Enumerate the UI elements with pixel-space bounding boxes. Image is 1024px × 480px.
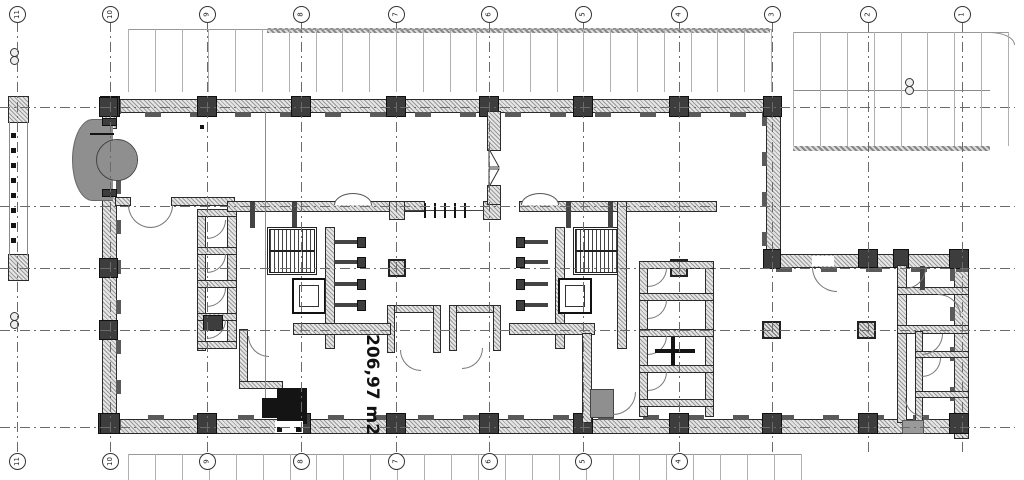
door-arc: [648, 372, 667, 391]
parking-stall-divider: [664, 29, 665, 92]
parking-stall-divider: [530, 29, 531, 92]
parking-stall-divider: [342, 29, 343, 92]
parking-stall-divider: [423, 29, 424, 92]
toilet-partition: [671, 337, 675, 365]
grid-bubble-bottom-8: 8: [293, 453, 310, 470]
column-dot: [200, 125, 204, 129]
fin-wall: [522, 240, 548, 244]
partition: [198, 281, 236, 287]
grid-bubble-label: 11: [14, 457, 21, 466]
fence-post: [11, 163, 16, 168]
parking-stall-divider: [290, 454, 291, 480]
grid-bubble-bottom-4: 4: [671, 453, 688, 470]
mullion-post: [390, 202, 404, 219]
door-arc: [812, 267, 837, 292]
grid-line-horizontal: [0, 330, 1015, 331]
fin-cap: [358, 238, 365, 247]
fence-post: [11, 238, 16, 243]
wall-right-main: [767, 100, 780, 267]
parking-stall-divider: [316, 29, 317, 92]
parking-stall-divider: [801, 454, 802, 480]
door-arc: [207, 220, 226, 239]
door-arc: [128, 205, 151, 228]
grid-bubble-label: 1: [959, 12, 966, 16]
parking-stall-divider: [874, 32, 875, 146]
elevator-car: [566, 286, 584, 306]
parking-stall-divider: [396, 29, 397, 92]
parking-stall-divider: [316, 454, 317, 480]
fence-post: [11, 133, 16, 138]
grid-bubble-label: 10: [107, 10, 114, 19]
partition: [434, 306, 440, 352]
parking-stall-divider: [691, 29, 692, 92]
parking-stall-divider: [451, 454, 452, 480]
fence-line: [27, 122, 28, 255]
door-arc: [462, 348, 483, 369]
door-arc: [207, 288, 226, 307]
parking-stall-divider: [720, 454, 721, 480]
parking-stall-divider: [182, 29, 183, 92]
parking-stall-divider: [208, 29, 209, 92]
swing-door-arc: [521, 193, 559, 205]
parking-stall-divider: [927, 32, 928, 146]
parking-stall-divider: [235, 29, 236, 92]
column: [950, 250, 968, 268]
fin-wall: [334, 282, 360, 286]
parking-stall-divider: [128, 29, 129, 92]
parking-stall-divider: [424, 454, 425, 480]
fin-cap: [358, 280, 365, 289]
shaft: [591, 390, 613, 417]
partition: [640, 400, 713, 406]
parking-stall-divider: [693, 454, 694, 480]
fin-cap: [358, 301, 365, 310]
parking-stall-divider: [666, 454, 667, 480]
grid-bubble-label: 11: [14, 10, 21, 19]
door-arc: [648, 268, 667, 287]
core-wall: [228, 202, 236, 348]
grid-bubble-label: 8: [298, 12, 305, 16]
fin-wall: [522, 303, 548, 307]
room-row-wall: [640, 262, 647, 416]
door-arc: [922, 358, 941, 377]
fin-wall: [334, 303, 360, 307]
partition: [494, 306, 500, 350]
partition: [450, 306, 500, 312]
room-row-wall: [706, 262, 713, 416]
column: [894, 250, 908, 267]
shear-wall: [277, 388, 307, 424]
parking-stall-divider: [613, 454, 614, 480]
partition: [116, 198, 130, 205]
fin-wall: [334, 240, 360, 244]
grid-bubble-label: 2: [865, 12, 872, 16]
door-arc: [207, 254, 226, 273]
grid-bubble-label: 10: [107, 457, 114, 466]
grid-bubble-label: 4: [676, 459, 683, 463]
fence-post: [11, 223, 16, 228]
elevator-car: [300, 286, 318, 306]
partition: [172, 198, 234, 205]
fin-wall: [334, 260, 360, 264]
door-gap: [812, 256, 834, 266]
fin-cap: [358, 258, 365, 267]
grid-line-horizontal: [0, 427, 1015, 428]
fence-line: [9, 122, 10, 255]
interior-wall: [510, 324, 594, 334]
grid-bubble-label: 6: [486, 459, 493, 463]
grid-bubble-top-1: 1: [954, 6, 971, 23]
parking-stall-divider: [793, 32, 794, 146]
parking-stall-divider: [559, 454, 560, 480]
grid-bubble-label: 6: [486, 12, 493, 16]
parking-stall-divider: [478, 454, 479, 480]
grid-bubble-top-8: 8: [293, 6, 310, 23]
mullion-post: [484, 202, 500, 219]
parking-stall-divider: [450, 29, 451, 92]
canopy-line: [265, 112, 266, 402]
partition: [240, 382, 282, 388]
fin-cap: [517, 301, 524, 310]
fin-cap: [517, 238, 524, 247]
partition: [240, 330, 247, 388]
grid-bubble-top-7: 7: [388, 6, 405, 23]
grid-bubble-label: 4: [676, 12, 683, 16]
parking-stall-divider: [637, 29, 638, 92]
fin-wall: [522, 282, 548, 286]
parking-stall-divider: [532, 454, 533, 480]
door-arc: [400, 350, 421, 371]
grid-bubble-bottom-5: 5: [575, 453, 592, 470]
stair-flight: [270, 252, 314, 272]
interior-wall: [583, 334, 591, 422]
parking-stall-divider: [717, 29, 718, 92]
grid-line-3: [772, 22, 773, 452]
pier-strip: [762, 112, 767, 262]
parking-stall-divider: [639, 454, 640, 480]
floor-plan-canvas: 206,97 m2 11111010998877665544321: [0, 0, 1024, 480]
swing-door-arc: [334, 193, 372, 205]
grid-line-horizontal: [0, 268, 1015, 269]
parking-stall-divider: [1008, 32, 1009, 146]
parking-stall-divider: [503, 29, 504, 92]
wing-partition: [898, 288, 968, 294]
fin-wall: [522, 260, 548, 264]
door-arc: [150, 205, 173, 228]
grid-bubble-top-6: 6: [481, 6, 498, 23]
parking-stall-divider: [263, 454, 264, 480]
fence-pier: [9, 97, 28, 122]
shear-wall: [262, 398, 277, 418]
grid-bubble-label: 7: [393, 459, 400, 463]
parking-stall-divider: [370, 454, 371, 480]
fence-post: [11, 208, 16, 213]
parking-stall-divider: [182, 454, 183, 480]
parking-stall-divider: [610, 29, 611, 92]
parking-stall-divider: [820, 32, 821, 146]
grid-bubble-label: 8: [298, 459, 305, 463]
partition: [450, 306, 456, 350]
parking-stall-divider: [343, 454, 344, 480]
parking-stall-divider: [747, 454, 748, 480]
parking-stall-divider: [847, 32, 848, 146]
parking-stall-divider: [505, 454, 506, 480]
grid-bubble-top-5: 5: [575, 6, 592, 23]
grid-bubble-bottom-7: 7: [388, 453, 405, 470]
fin-cap: [517, 280, 524, 289]
toilet-partition: [655, 349, 695, 353]
stair-flight: [270, 230, 314, 250]
grid-bubble-label: 9: [204, 459, 211, 463]
grid-bubble-label: 7: [393, 12, 400, 16]
parking-stall-divider: [262, 29, 263, 92]
door-arc: [648, 300, 667, 319]
parking-stall-divider: [771, 29, 772, 92]
fence-post: [11, 148, 16, 153]
wing-partition: [916, 392, 968, 397]
grid-bubble-top-11: 11: [9, 6, 26, 23]
grid-bubble-top-3: 3: [764, 6, 781, 23]
parking-stall-divider: [155, 29, 156, 92]
grid-bubble-top-4: 4: [671, 6, 688, 23]
parking-stall-divider: [236, 454, 237, 480]
parking-stall-divider: [289, 29, 290, 92]
grid-line-10: [110, 22, 111, 452]
grid-bubble-top-9: 9: [199, 6, 216, 23]
grid-bubble-bottom-6: 6: [481, 453, 498, 470]
parking-stall-divider: [583, 29, 584, 92]
parking-stall-divider: [369, 29, 370, 92]
parking-stall-divider: [981, 32, 982, 146]
parking-stall-divider: [954, 32, 955, 146]
grid-bubble-label: 9: [204, 12, 211, 16]
grid-bubble-label: 5: [580, 12, 587, 16]
grid-bubble-top-2: 2: [860, 6, 877, 23]
interior-wall: [294, 324, 390, 334]
grid-line-11: [17, 22, 18, 452]
pier-strip: [103, 415, 968, 420]
parking-stall-divider: [744, 29, 745, 92]
parking-stall-divider: [557, 29, 558, 92]
grid-bubble-bottom-10: 10: [102, 453, 119, 470]
grid-bubble-bottom-11: 11: [9, 453, 26, 470]
parking-stall-divider: [774, 454, 775, 480]
parking-stall-divider: [901, 32, 902, 146]
area-label: 206,97 m2: [356, 334, 382, 434]
parking-row-bottom: [128, 454, 801, 480]
parking-stall-divider: [476, 29, 477, 92]
fence-post: [11, 178, 16, 183]
grid-bubble-label: 3: [769, 12, 776, 16]
fence-post: [11, 193, 16, 198]
core-wall: [618, 202, 626, 348]
door-arc: [613, 392, 636, 415]
entrance-inner-circle: [97, 140, 137, 180]
grid-bubble-top-10: 10: [102, 6, 119, 23]
grid-line-horizontal: [0, 206, 1015, 207]
parking-stall-divider: [128, 454, 129, 480]
grid-bubble-bottom-9: 9: [199, 453, 216, 470]
column: [950, 414, 968, 433]
grid-bubble-label: 5: [580, 459, 587, 463]
parking-stall-divider: [155, 454, 156, 480]
partition: [198, 342, 236, 348]
fin-cap: [517, 258, 524, 267]
